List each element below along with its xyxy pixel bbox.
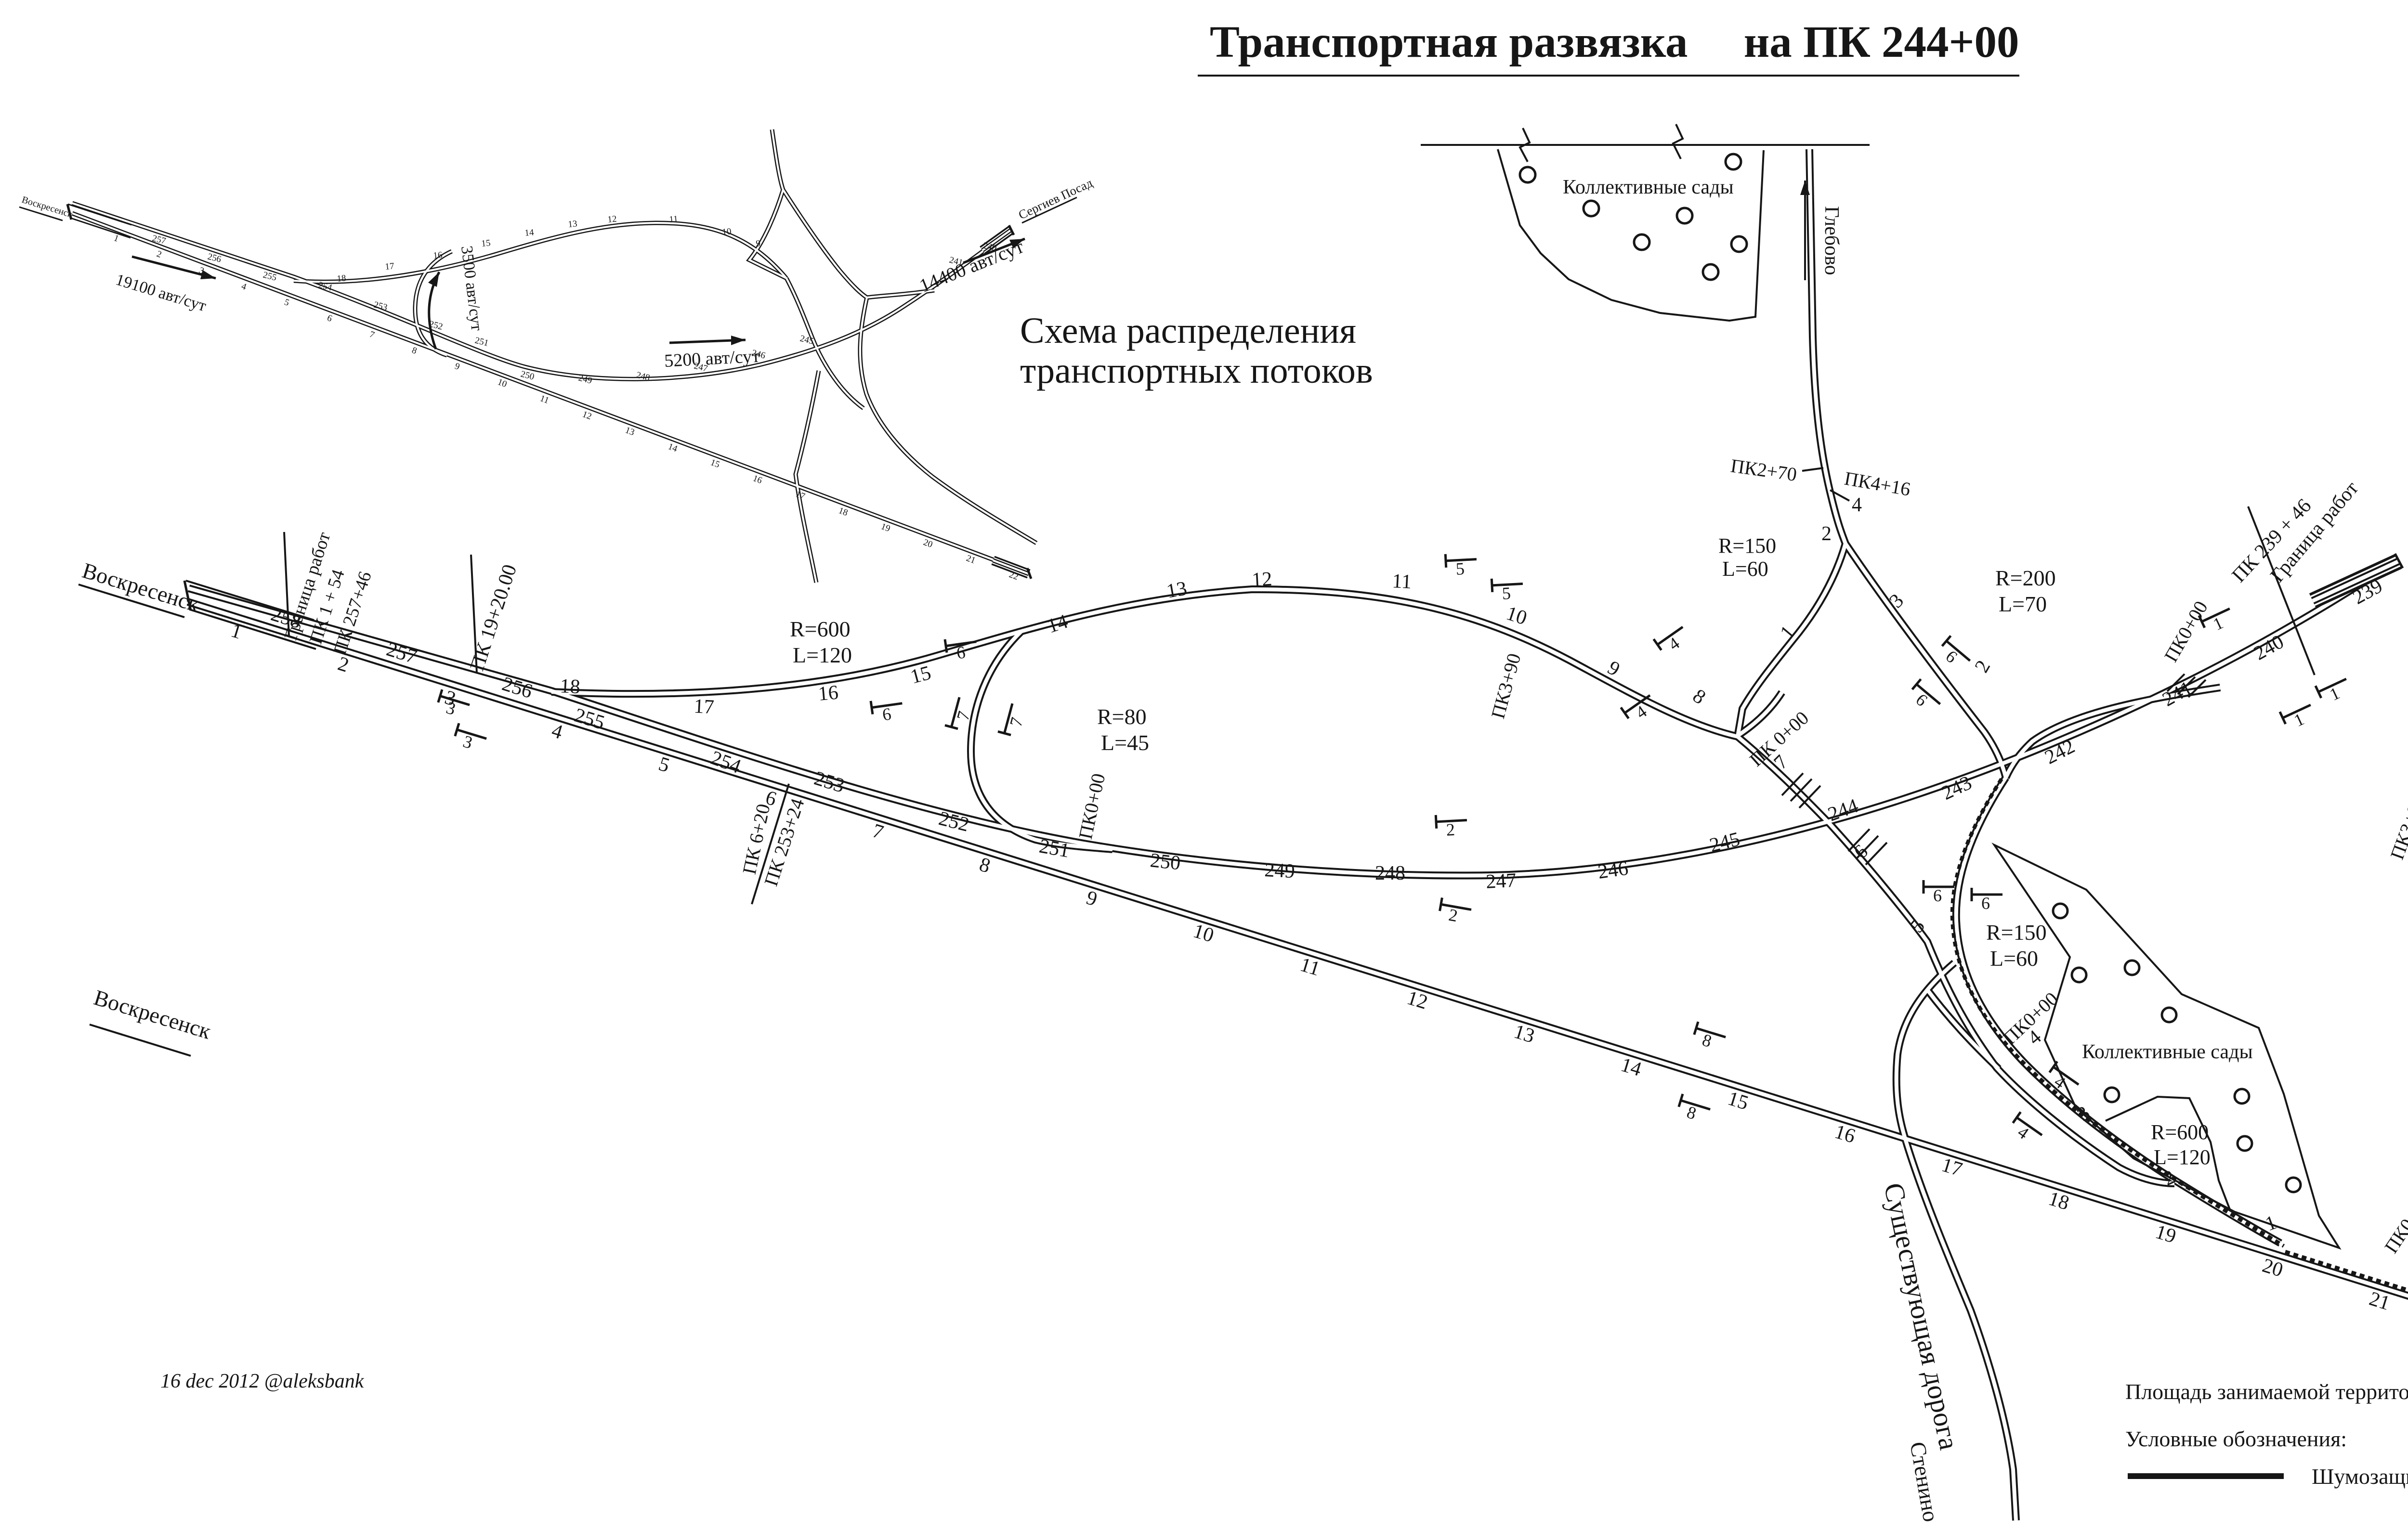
svg-text:16: 16 [817, 681, 839, 705]
svg-text:18: 18 [337, 273, 347, 284]
svg-text:5: 5 [1455, 559, 1465, 579]
svg-text:Схема распределения: Схема распределения [1020, 311, 1356, 351]
svg-text:R=600: R=600 [790, 617, 851, 641]
svg-text:4: 4 [1852, 494, 1862, 516]
svg-text:L=45: L=45 [1101, 730, 1149, 755]
svg-text:14: 14 [524, 227, 535, 238]
svg-text:L=120: L=120 [793, 643, 852, 667]
svg-text:Глебово: Глебово [1820, 206, 1843, 275]
svg-text:2: 2 [1821, 523, 1832, 545]
svg-text:R=150: R=150 [1718, 534, 1776, 558]
svg-text:L=60: L=60 [1722, 557, 1768, 581]
svg-text:5: 5 [1502, 584, 1511, 603]
svg-text:12: 12 [1251, 568, 1272, 591]
svg-text:Условные обозначения:: Условные обозначения: [2125, 1427, 2347, 1451]
svg-text:10: 10 [722, 226, 732, 237]
svg-text:249: 249 [1264, 859, 1295, 882]
svg-text:18: 18 [559, 675, 580, 698]
svg-text:транспортных потоков: транспортных потоков [1020, 350, 1373, 391]
svg-text:17: 17 [385, 261, 395, 272]
svg-text:11: 11 [1391, 570, 1412, 593]
svg-text:R=200: R=200 [1995, 566, 2056, 590]
svg-text:15: 15 [481, 238, 491, 249]
svg-text:12: 12 [607, 214, 617, 225]
svg-text:Коллективные сады: Коллективные сады [1563, 176, 1734, 198]
svg-text:9: 9 [756, 238, 761, 249]
svg-text:L=120: L=120 [2154, 1145, 2211, 1169]
svg-text:Транспортная развязка на ПК 2: Транспортная развязка на ПК 244+00 [1210, 17, 2019, 67]
svg-text:16: 16 [433, 250, 443, 261]
svg-text:248: 248 [1375, 862, 1405, 884]
svg-text:250: 250 [1149, 849, 1181, 874]
svg-text:R=150: R=150 [1986, 920, 2047, 945]
svg-text:Коллективные сады: Коллективные сады [2082, 1041, 2253, 1063]
svg-text:R=600: R=600 [2151, 1120, 2209, 1144]
svg-text:247: 247 [1485, 869, 1517, 893]
svg-text:13: 13 [1165, 577, 1189, 603]
svg-text:R=80: R=80 [1097, 704, 1147, 729]
svg-text:13: 13 [568, 219, 578, 230]
svg-text:246: 246 [1597, 857, 1630, 883]
svg-text:L=60: L=60 [1990, 946, 2038, 971]
svg-text:Площадь занимаемой территории: Площадь занимаемой территории - 35,9га [2125, 1379, 2408, 1404]
svg-text:6: 6 [1981, 894, 1990, 913]
svg-text:L=70: L=70 [1999, 592, 2047, 616]
svg-text:2: 2 [1446, 820, 1455, 840]
svg-text:17: 17 [693, 695, 714, 718]
svg-text:6: 6 [1933, 886, 1942, 905]
svg-text:11: 11 [669, 214, 679, 225]
svg-text:Шумозащитные экраны: Шумозащитные экраны [2312, 1464, 2408, 1489]
svg-text:16 dec 2012 @aleksbank: 16 dec 2012 @aleksbank [160, 1370, 365, 1392]
